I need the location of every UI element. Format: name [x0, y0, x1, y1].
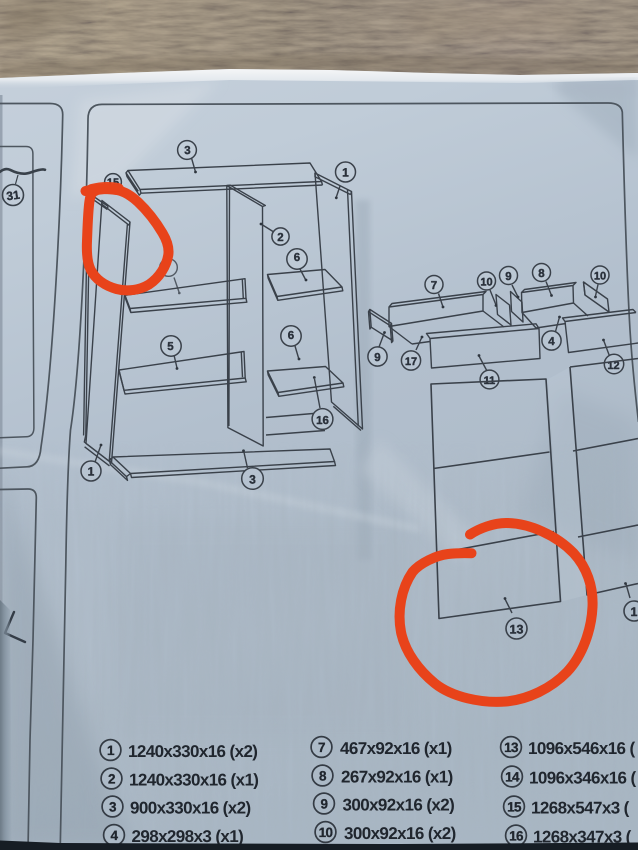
svg-text:1096x346x16 (: 1096x346x16 ( — [529, 769, 637, 788]
svg-text:2: 2 — [277, 232, 283, 244]
svg-text:9: 9 — [321, 796, 328, 811]
svg-text:3: 3 — [249, 472, 256, 486]
svg-text:298x298x3 (x1): 298x298x3 (x1) — [132, 827, 244, 846]
svg-text:9: 9 — [505, 271, 511, 283]
svg-text:8: 8 — [319, 768, 327, 783]
svg-text:1: 1 — [631, 605, 638, 619]
svg-text:7: 7 — [431, 280, 437, 292]
svg-text:1096x546x16 (: 1096x546x16 ( — [528, 739, 636, 758]
svg-text:9: 9 — [374, 352, 380, 364]
svg-text:5: 5 — [167, 341, 174, 353]
svg-text:17: 17 — [405, 356, 417, 368]
svg-text:10: 10 — [594, 270, 606, 282]
svg-text:900x330x16 (x2): 900x330x16 (x2) — [130, 799, 251, 818]
svg-text:15: 15 — [507, 799, 522, 814]
svg-text:4: 4 — [548, 336, 555, 348]
svg-text:1: 1 — [342, 166, 349, 180]
svg-text:300x92x16 (x2): 300x92x16 (x2) — [343, 796, 455, 815]
svg-text:1: 1 — [88, 465, 95, 479]
svg-text:467x92x16 (x1): 467x92x16 (x1) — [340, 739, 452, 758]
svg-text:31: 31 — [5, 188, 20, 204]
svg-text:267x92x16 (x1): 267x92x16 (x1) — [341, 768, 453, 787]
svg-text:13: 13 — [504, 740, 519, 755]
svg-text:16: 16 — [509, 828, 524, 843]
svg-text:7: 7 — [318, 740, 325, 755]
svg-text:3: 3 — [184, 145, 190, 157]
svg-text:10: 10 — [319, 825, 333, 840]
svg-text:6: 6 — [288, 330, 294, 342]
svg-text:16: 16 — [316, 415, 329, 427]
svg-text:14: 14 — [505, 769, 520, 784]
svg-text:13: 13 — [510, 622, 524, 636]
svg-text:300x92x16 (x2): 300x92x16 (x2) — [344, 824, 456, 843]
svg-text:6: 6 — [294, 252, 300, 264]
svg-text:1: 1 — [107, 743, 115, 758]
svg-text:1240x330x16 (x2): 1240x330x16 (x2) — [128, 742, 257, 761]
svg-text:8: 8 — [538, 268, 545, 280]
svg-text:2: 2 — [108, 771, 115, 786]
svg-text:10: 10 — [480, 276, 492, 288]
svg-text:4: 4 — [111, 828, 119, 843]
svg-text:3: 3 — [109, 799, 117, 814]
svg-text:1268x547x3 (: 1268x547x3 ( — [531, 799, 630, 818]
svg-text:1240x330x16 (x1): 1240x330x16 (x1) — [129, 771, 258, 790]
